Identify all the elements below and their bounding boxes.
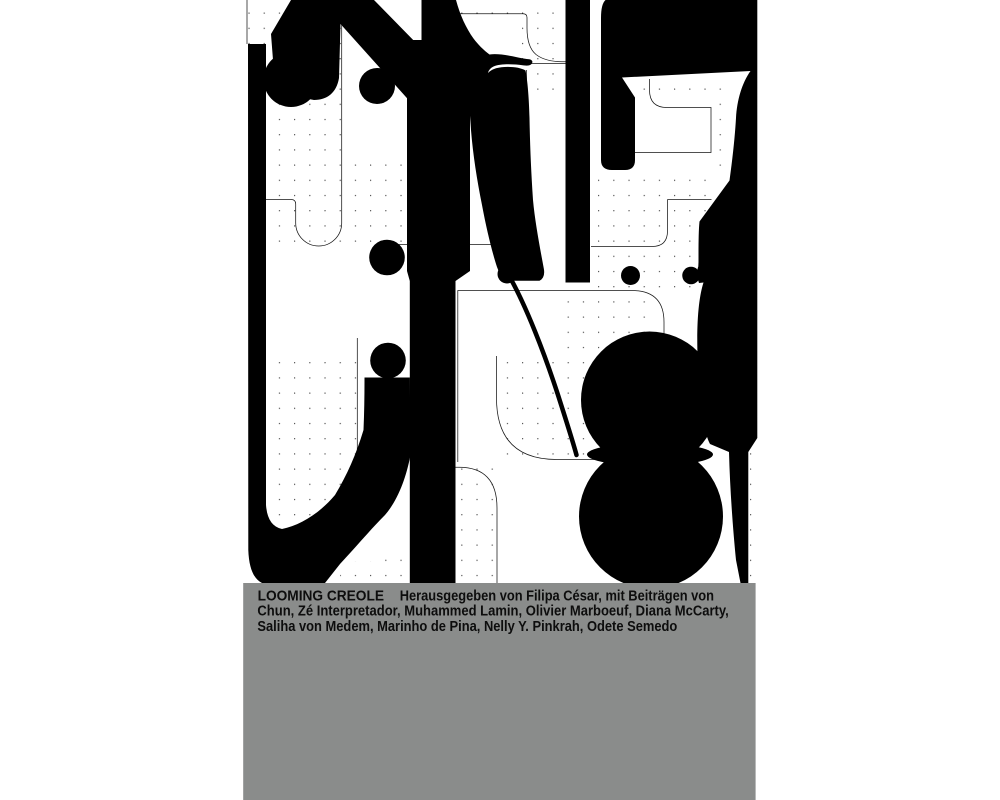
svg-text:Chun, Zé Interpretador, Muhamm: Chun, Zé Interpretador, Muhammed Lamin, … — [257, 602, 728, 619]
svg-text:Saliha von Medem, Marinho de P: Saliha von Medem, Marinho de Pina, Nelly… — [257, 618, 677, 634]
